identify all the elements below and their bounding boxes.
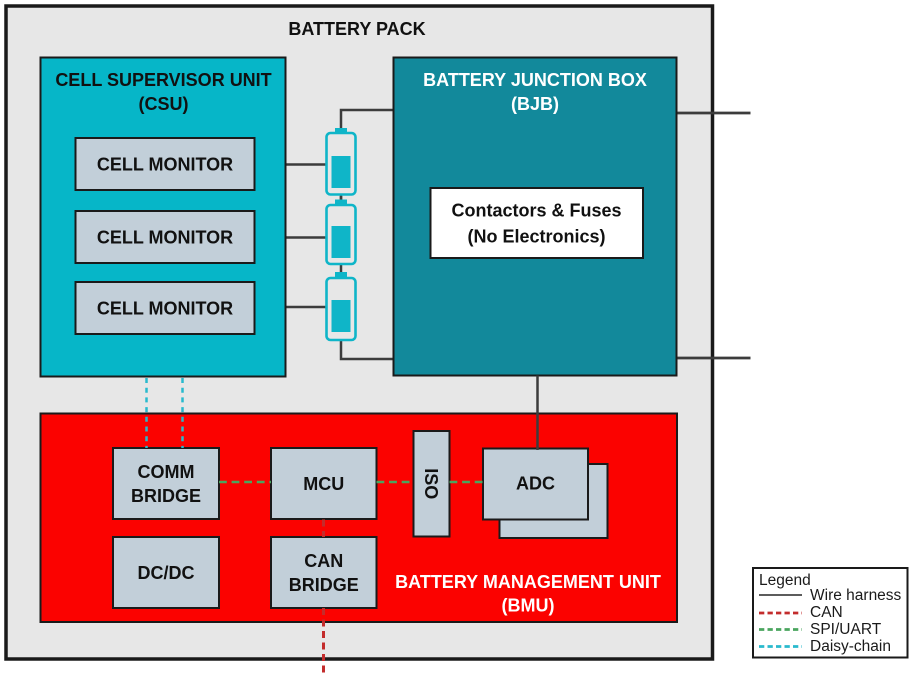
svg-text:COMM: COMM bbox=[138, 462, 195, 482]
svg-text:ISO: ISO bbox=[421, 468, 441, 499]
svg-text:MCU: MCU bbox=[303, 474, 344, 494]
svg-text:SPI/UART: SPI/UART bbox=[810, 621, 882, 638]
svg-text:CAN: CAN bbox=[304, 551, 343, 571]
svg-text:BATTERY PACK: BATTERY PACK bbox=[288, 19, 425, 39]
svg-text:CELL SUPERVISOR UNIT: CELL SUPERVISOR UNIT bbox=[55, 70, 271, 90]
svg-text:(BMU): (BMU) bbox=[502, 596, 555, 616]
svg-text:BATTERY JUNCTION BOX: BATTERY JUNCTION BOX bbox=[423, 70, 647, 90]
svg-text:CELL MONITOR: CELL MONITOR bbox=[97, 155, 233, 175]
svg-text:(BJB): (BJB) bbox=[511, 94, 559, 114]
svg-text:Contactors & Fuses: Contactors & Fuses bbox=[451, 201, 621, 221]
svg-text:BATTERY MANAGEMENT UNIT: BATTERY MANAGEMENT UNIT bbox=[395, 572, 661, 592]
svg-text:(CSU): (CSU) bbox=[139, 94, 189, 114]
svg-text:CELL MONITOR: CELL MONITOR bbox=[97, 299, 233, 319]
svg-text:(No Electronics): (No Electronics) bbox=[467, 227, 605, 247]
svg-text:BRIDGE: BRIDGE bbox=[289, 575, 359, 595]
svg-text:CELL MONITOR: CELL MONITOR bbox=[97, 228, 233, 248]
svg-text:Daisy-chain: Daisy-chain bbox=[810, 638, 891, 655]
svg-text:Wire harness: Wire harness bbox=[810, 587, 902, 604]
svg-text:ADC: ADC bbox=[516, 474, 555, 494]
svg-text:CAN: CAN bbox=[810, 604, 843, 621]
svg-text:BRIDGE: BRIDGE bbox=[131, 486, 201, 506]
svg-text:DC/DC: DC/DC bbox=[138, 563, 195, 583]
svg-text:Legend: Legend bbox=[759, 572, 811, 589]
